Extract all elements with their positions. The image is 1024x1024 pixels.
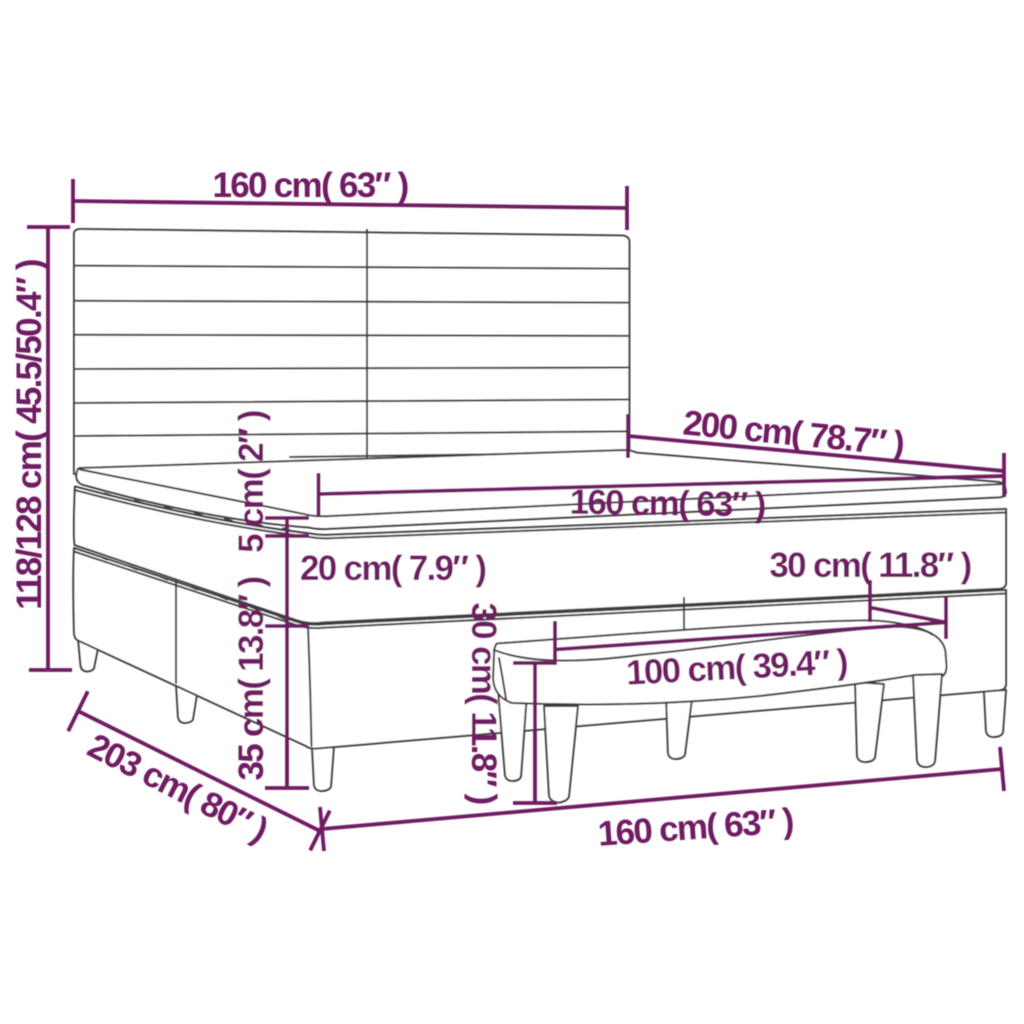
svg-text:30 cm( 11.8″ ): 30 cm( 11.8″ ) xyxy=(464,602,503,803)
svg-text:118/128 cm( 45.5/50.4″ ): 118/128 cm( 45.5/50.4″ ) xyxy=(10,260,49,610)
svg-text:160 cm( 63″ ): 160 cm( 63″ ) xyxy=(569,483,765,525)
svg-text:160 cm( 63″ ): 160 cm( 63″ ) xyxy=(212,166,407,205)
svg-text:35 cm( 13.8″ ): 35 cm( 13.8″ ) xyxy=(232,577,271,780)
svg-text:20 cm( 7.9″ ): 20 cm( 7.9″ ) xyxy=(300,549,485,588)
svg-text:5 cm( 2″ ): 5 cm( 2″ ) xyxy=(232,411,271,553)
svg-text:30 cm( 11.8″ ): 30 cm( 11.8″ ) xyxy=(769,546,970,585)
